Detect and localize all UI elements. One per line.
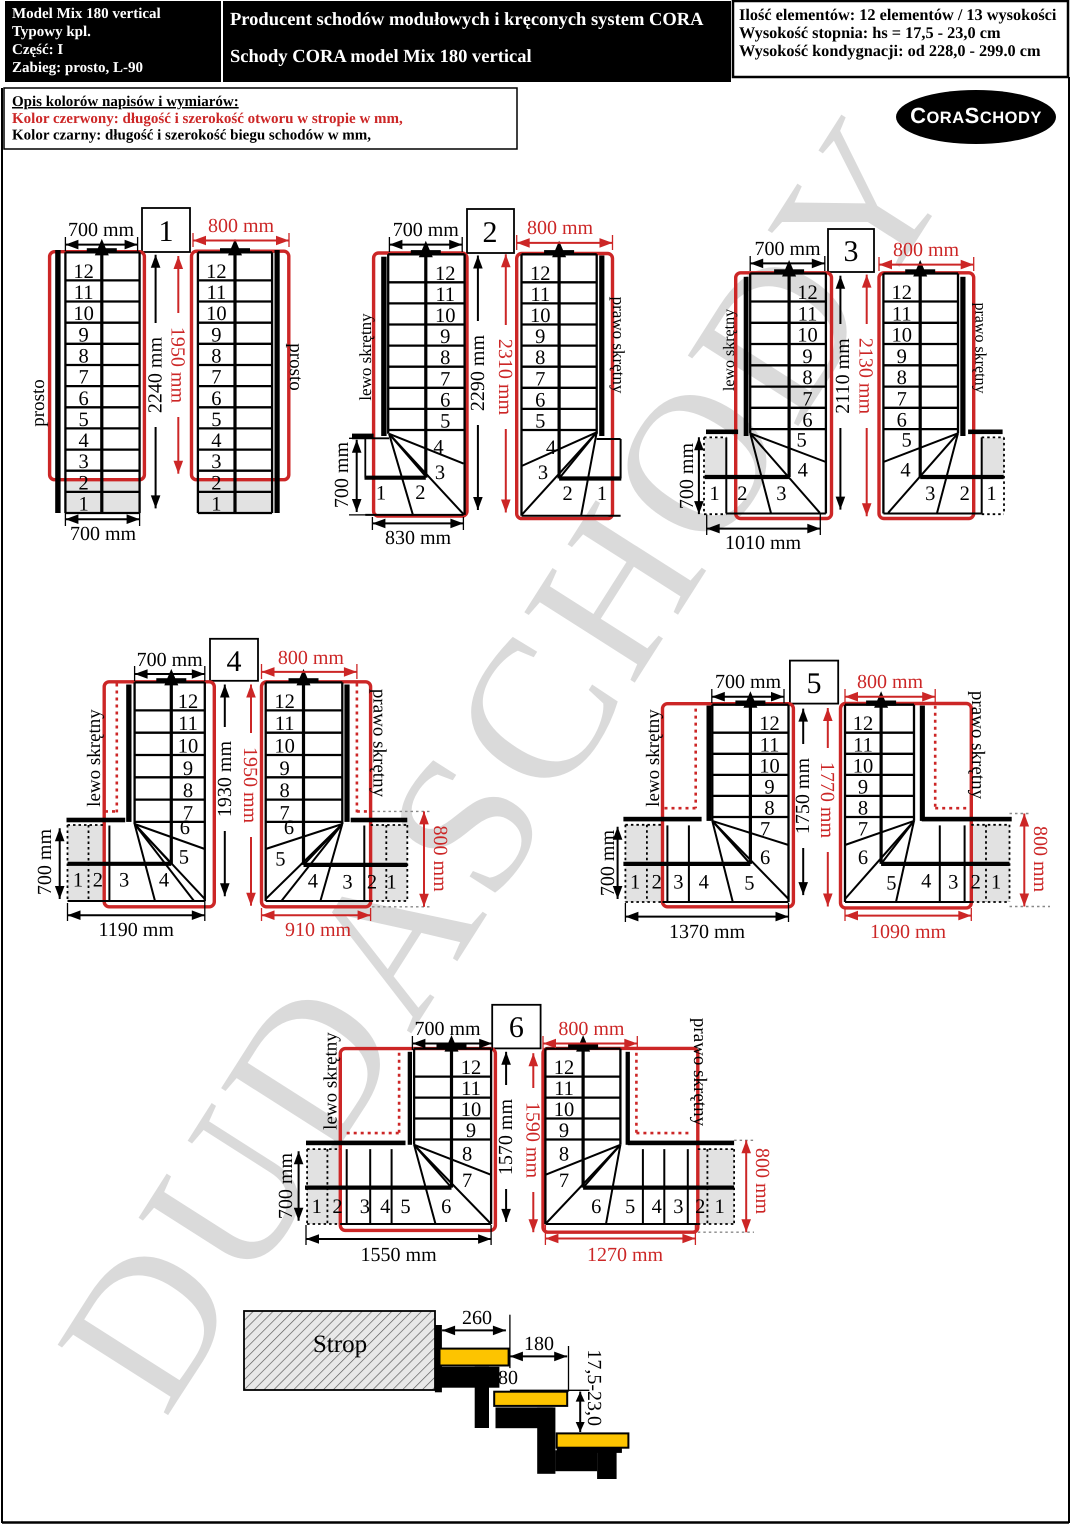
svg-text:lewo skrętny: lewo skrętny bbox=[321, 1032, 342, 1130]
svg-text:3: 3 bbox=[342, 872, 352, 894]
svg-text:1950 mm: 1950 mm bbox=[166, 327, 188, 404]
svg-text:2: 2 bbox=[78, 472, 88, 494]
svg-text:Kolor czerwony: długość i sze: Kolor czerwony: długość i szerokość otwo… bbox=[12, 111, 403, 127]
svg-text:12: 12 bbox=[759, 713, 780, 735]
svg-text:4: 4 bbox=[546, 437, 556, 459]
svg-text:1: 1 bbox=[709, 483, 719, 505]
svg-text:Wysokość stopnia: hs = 17,5 -: Wysokość stopnia: hs = 17,5 - 23,0 cm bbox=[739, 23, 1001, 42]
svg-text:800 mm: 800 mm bbox=[558, 1018, 625, 1040]
svg-text:7: 7 bbox=[462, 1170, 472, 1192]
svg-text:8: 8 bbox=[279, 780, 289, 802]
svg-text:10: 10 bbox=[435, 305, 456, 327]
svg-text:lewo skrętny: lewo skrętny bbox=[84, 709, 105, 807]
svg-text:prawo skrętny: prawo skrętny bbox=[972, 302, 989, 393]
svg-text:4: 4 bbox=[227, 645, 242, 678]
svg-text:9: 9 bbox=[78, 324, 88, 346]
svg-text:12: 12 bbox=[206, 261, 227, 283]
svg-text:8: 8 bbox=[858, 798, 868, 820]
svg-text:1: 1 bbox=[597, 483, 607, 505]
svg-text:12: 12 bbox=[554, 1057, 575, 1079]
svg-text:1190 mm: 1190 mm bbox=[99, 919, 175, 941]
svg-text:80: 80 bbox=[498, 1367, 518, 1389]
svg-text:lewo skrętny: lewo skrętny bbox=[356, 313, 375, 401]
svg-text:Część: I: Część: I bbox=[12, 42, 63, 58]
svg-text:1: 1 bbox=[991, 872, 1001, 894]
svg-text:3: 3 bbox=[948, 872, 958, 894]
svg-text:Strop: Strop bbox=[313, 1331, 367, 1358]
svg-text:6: 6 bbox=[509, 1011, 524, 1044]
svg-text:2: 2 bbox=[652, 872, 662, 894]
svg-text:700 mm: 700 mm bbox=[70, 523, 137, 545]
svg-text:3: 3 bbox=[78, 451, 88, 473]
svg-text:8: 8 bbox=[462, 1143, 472, 1165]
svg-text:1: 1 bbox=[630, 872, 640, 894]
svg-text:8: 8 bbox=[535, 347, 545, 369]
svg-text:260: 260 bbox=[462, 1307, 492, 1329]
svg-text:11: 11 bbox=[853, 734, 873, 756]
svg-text:3: 3 bbox=[925, 483, 935, 505]
svg-text:8: 8 bbox=[211, 346, 221, 368]
svg-text:910 mm: 910 mm bbox=[285, 919, 352, 941]
svg-text:5: 5 bbox=[211, 409, 221, 431]
svg-text:1: 1 bbox=[714, 1196, 724, 1218]
svg-text:6: 6 bbox=[802, 410, 812, 432]
svg-text:3: 3 bbox=[211, 451, 221, 473]
svg-text:3: 3 bbox=[776, 483, 786, 505]
svg-text:1770 mm: 1770 mm bbox=[816, 762, 838, 839]
svg-text:830 mm: 830 mm bbox=[385, 527, 452, 549]
svg-text:5: 5 bbox=[625, 1196, 635, 1218]
svg-text:1: 1 bbox=[78, 494, 88, 516]
svg-text:5: 5 bbox=[807, 667, 822, 700]
svg-text:12: 12 bbox=[274, 691, 295, 713]
svg-text:6: 6 bbox=[760, 847, 770, 869]
svg-text:Zabieg: prosto, L-90: Zabieg: prosto, L-90 bbox=[12, 60, 143, 76]
svg-text:1: 1 bbox=[73, 870, 83, 892]
svg-text:8: 8 bbox=[897, 367, 907, 389]
svg-text:3: 3 bbox=[844, 235, 859, 268]
svg-text:3: 3 bbox=[673, 872, 683, 894]
svg-text:6: 6 bbox=[858, 847, 868, 869]
svg-text:800 mm: 800 mm bbox=[208, 215, 275, 237]
svg-text:1: 1 bbox=[312, 1196, 322, 1218]
svg-text:prawo skrętny: prawo skrętny bbox=[967, 691, 988, 800]
svg-text:5: 5 bbox=[901, 430, 911, 452]
svg-text:11: 11 bbox=[892, 303, 912, 325]
svg-text:7: 7 bbox=[802, 388, 812, 410]
svg-text:800 mm: 800 mm bbox=[857, 671, 924, 693]
svg-text:prawo skrętny: prawo skrętny bbox=[369, 689, 390, 798]
svg-text:6: 6 bbox=[591, 1196, 601, 1218]
svg-text:3: 3 bbox=[673, 1196, 683, 1218]
svg-text:4: 4 bbox=[433, 437, 443, 459]
svg-text:2290 mm: 2290 mm bbox=[467, 335, 489, 412]
svg-text:5: 5 bbox=[744, 872, 754, 894]
svg-text:4: 4 bbox=[699, 872, 709, 894]
svg-text:11: 11 bbox=[760, 734, 780, 756]
svg-text:700 mm: 700 mm bbox=[754, 238, 821, 260]
svg-text:10: 10 bbox=[853, 755, 874, 777]
svg-text:11: 11 bbox=[554, 1078, 574, 1100]
svg-text:800 mm: 800 mm bbox=[527, 217, 594, 239]
svg-text:12: 12 bbox=[892, 282, 913, 304]
svg-text:8: 8 bbox=[802, 367, 812, 389]
svg-text:1930 mm: 1930 mm bbox=[214, 741, 236, 818]
svg-text:9: 9 bbox=[279, 758, 289, 780]
svg-text:2: 2 bbox=[562, 483, 572, 505]
svg-text:1590 mm: 1590 mm bbox=[521, 1102, 543, 1179]
svg-text:12: 12 bbox=[435, 263, 456, 285]
svg-text:11: 11 bbox=[530, 284, 550, 306]
svg-text:800 mm: 800 mm bbox=[751, 1148, 773, 1215]
svg-text:1550 mm: 1550 mm bbox=[361, 1244, 438, 1266]
svg-text:10: 10 bbox=[797, 325, 818, 347]
svg-text:prawo skrętny: prawo skrętny bbox=[689, 1018, 710, 1127]
svg-text:Kolor czarny: długość i szero: Kolor czarny: długość i szerokość biegu … bbox=[12, 128, 371, 144]
svg-text:9: 9 bbox=[440, 326, 450, 348]
svg-text:5: 5 bbox=[275, 849, 285, 871]
svg-text:Schody CORA model Mix 180 vert: Schody CORA model Mix 180 vertical bbox=[230, 47, 532, 67]
svg-text:8: 8 bbox=[183, 780, 193, 802]
svg-text:2: 2 bbox=[971, 872, 981, 894]
svg-text:2: 2 bbox=[415, 482, 425, 504]
svg-text:1270 mm: 1270 mm bbox=[587, 1244, 664, 1266]
svg-text:1570 mm: 1570 mm bbox=[495, 1099, 517, 1176]
svg-text:8: 8 bbox=[764, 798, 774, 820]
svg-text:800 mm: 800 mm bbox=[278, 647, 345, 669]
svg-text:700 mm: 700 mm bbox=[597, 830, 619, 897]
svg-text:9: 9 bbox=[211, 324, 221, 346]
svg-text:7: 7 bbox=[760, 819, 770, 841]
svg-text:2: 2 bbox=[483, 216, 498, 249]
svg-text:10: 10 bbox=[274, 736, 295, 758]
svg-text:2240 mm: 2240 mm bbox=[145, 337, 167, 414]
svg-text:6: 6 bbox=[897, 410, 907, 432]
svg-text:Ilość elementów: 12 elementów: Ilość elementów: 12 elementów / 13 wysok… bbox=[739, 5, 1057, 24]
svg-text:12: 12 bbox=[853, 713, 874, 735]
svg-text:2110 mm: 2110 mm bbox=[832, 338, 854, 414]
svg-text:1: 1 bbox=[386, 872, 396, 894]
svg-text:Model Mix 180 vertical: Model Mix 180 vertical bbox=[12, 6, 161, 22]
svg-text:4: 4 bbox=[308, 871, 318, 893]
svg-text:10: 10 bbox=[206, 303, 227, 325]
svg-text:4: 4 bbox=[900, 460, 910, 482]
svg-text:6: 6 bbox=[211, 388, 221, 410]
svg-text:prosto: prosto bbox=[285, 343, 306, 391]
svg-text:1010 mm: 1010 mm bbox=[725, 532, 802, 554]
svg-text:5: 5 bbox=[886, 872, 896, 894]
svg-text:2: 2 bbox=[960, 483, 970, 505]
svg-text:10: 10 bbox=[759, 755, 780, 777]
svg-text:prosto: prosto bbox=[28, 379, 49, 427]
svg-text:700 mm: 700 mm bbox=[137, 649, 204, 671]
svg-text:5: 5 bbox=[78, 409, 88, 431]
svg-text:11: 11 bbox=[207, 282, 227, 304]
svg-text:9: 9 bbox=[897, 346, 907, 368]
svg-text:9: 9 bbox=[183, 758, 193, 780]
svg-text:1750 mm: 1750 mm bbox=[792, 758, 814, 835]
svg-text:2310 mm: 2310 mm bbox=[494, 339, 516, 416]
svg-text:lewo skrętny: lewo skrętny bbox=[643, 709, 664, 807]
svg-text:10: 10 bbox=[554, 1099, 575, 1121]
svg-text:1: 1 bbox=[376, 483, 386, 505]
svg-text:800 mm: 800 mm bbox=[429, 826, 451, 893]
svg-text:4: 4 bbox=[798, 460, 808, 482]
svg-text:7: 7 bbox=[559, 1170, 569, 1192]
svg-text:4: 4 bbox=[652, 1196, 662, 1218]
svg-text:10: 10 bbox=[530, 305, 551, 327]
svg-text:6: 6 bbox=[284, 817, 294, 839]
svg-text:4: 4 bbox=[921, 871, 931, 893]
svg-text:2: 2 bbox=[93, 870, 103, 892]
svg-text:10: 10 bbox=[73, 303, 94, 325]
svg-text:5: 5 bbox=[179, 847, 189, 869]
svg-text:11: 11 bbox=[798, 303, 818, 325]
svg-text:6: 6 bbox=[78, 388, 88, 410]
svg-text:1: 1 bbox=[211, 494, 221, 516]
svg-text:4: 4 bbox=[159, 870, 169, 892]
svg-text:700 mm: 700 mm bbox=[715, 671, 782, 693]
svg-text:10: 10 bbox=[461, 1099, 482, 1121]
svg-text:12: 12 bbox=[73, 261, 94, 283]
svg-text:3: 3 bbox=[119, 870, 129, 892]
svg-text:5: 5 bbox=[400, 1196, 410, 1218]
svg-text:9: 9 bbox=[802, 346, 812, 368]
svg-text:700 mm: 700 mm bbox=[414, 1018, 481, 1040]
svg-text:11: 11 bbox=[461, 1078, 481, 1100]
svg-text:3: 3 bbox=[435, 462, 445, 484]
svg-text:2: 2 bbox=[332, 1196, 342, 1218]
svg-text:2130 mm: 2130 mm bbox=[855, 338, 877, 415]
svg-text:Wysokość kondygnacji: od 228,0: Wysokość kondygnacji: od 228,0 - 299.0 c… bbox=[739, 41, 1041, 60]
svg-text:700 mm: 700 mm bbox=[275, 1153, 297, 1220]
svg-text:1950 mm: 1950 mm bbox=[239, 747, 261, 824]
svg-text:11: 11 bbox=[178, 713, 198, 735]
svg-text:12: 12 bbox=[797, 282, 818, 304]
svg-text:2: 2 bbox=[695, 1196, 705, 1218]
svg-text:7: 7 bbox=[440, 368, 450, 390]
svg-text:1: 1 bbox=[986, 483, 996, 505]
svg-text:9: 9 bbox=[466, 1120, 476, 1142]
svg-text:2: 2 bbox=[211, 472, 221, 494]
svg-text:1: 1 bbox=[159, 215, 174, 248]
svg-text:7: 7 bbox=[211, 367, 221, 389]
svg-text:8: 8 bbox=[559, 1143, 569, 1165]
svg-text:17,5-23,0: 17,5-23,0 bbox=[583, 1349, 605, 1426]
svg-text:9: 9 bbox=[764, 776, 774, 798]
svg-text:3: 3 bbox=[360, 1196, 370, 1218]
svg-text:prawo skrętny: prawo skrętny bbox=[609, 297, 628, 394]
svg-text:6: 6 bbox=[441, 1196, 451, 1218]
svg-text:7: 7 bbox=[858, 819, 868, 841]
svg-text:2: 2 bbox=[737, 483, 747, 505]
svg-text:700 mm: 700 mm bbox=[34, 829, 56, 896]
svg-text:800 mm: 800 mm bbox=[1029, 826, 1051, 893]
svg-text:4: 4 bbox=[380, 1196, 390, 1218]
svg-text:10: 10 bbox=[178, 736, 199, 758]
svg-text:7: 7 bbox=[78, 367, 88, 389]
svg-text:9: 9 bbox=[858, 776, 868, 798]
svg-text:4: 4 bbox=[211, 430, 221, 452]
svg-text:12: 12 bbox=[461, 1057, 482, 1079]
svg-text:7: 7 bbox=[897, 388, 907, 410]
svg-text:700 mm: 700 mm bbox=[676, 443, 698, 510]
svg-text:4: 4 bbox=[78, 430, 88, 452]
svg-text:2: 2 bbox=[367, 872, 377, 894]
svg-text:6: 6 bbox=[440, 389, 450, 411]
svg-text:6: 6 bbox=[180, 817, 190, 839]
svg-text:11: 11 bbox=[74, 282, 94, 304]
svg-text:lewo skrętny: lewo skrętny bbox=[721, 309, 738, 391]
svg-text:700 mm: 700 mm bbox=[393, 219, 460, 241]
svg-text:5: 5 bbox=[796, 430, 806, 452]
svg-text:700 mm: 700 mm bbox=[68, 219, 135, 241]
svg-text:5: 5 bbox=[535, 411, 545, 433]
svg-text:11: 11 bbox=[435, 284, 455, 306]
svg-text:11: 11 bbox=[275, 713, 295, 735]
svg-text:9: 9 bbox=[535, 326, 545, 348]
svg-text:Opis kolorów napisów i wymiaró: Opis kolorów napisów i wymiarów: bbox=[12, 94, 239, 110]
svg-text:9: 9 bbox=[559, 1120, 569, 1142]
svg-text:10: 10 bbox=[892, 325, 913, 347]
svg-text:800 mm: 800 mm bbox=[893, 239, 960, 261]
svg-text:3: 3 bbox=[538, 462, 548, 484]
svg-text:Producent schodów modułowych i: Producent schodów modułowych i kręconych… bbox=[230, 10, 704, 30]
svg-text:700 mm: 700 mm bbox=[331, 442, 353, 509]
svg-text:Typowy kpl.: Typowy kpl. bbox=[12, 24, 91, 40]
svg-text:8: 8 bbox=[440, 347, 450, 369]
svg-text:1090 mm: 1090 mm bbox=[870, 921, 947, 943]
svg-text:8: 8 bbox=[78, 346, 88, 368]
svg-text:12: 12 bbox=[530, 263, 551, 285]
svg-text:5: 5 bbox=[440, 411, 450, 433]
svg-text:180: 180 bbox=[524, 1333, 554, 1355]
svg-text:12: 12 bbox=[178, 691, 199, 713]
svg-text:7: 7 bbox=[535, 368, 545, 390]
svg-text:1370 mm: 1370 mm bbox=[669, 921, 746, 943]
svg-text:6: 6 bbox=[535, 389, 545, 411]
